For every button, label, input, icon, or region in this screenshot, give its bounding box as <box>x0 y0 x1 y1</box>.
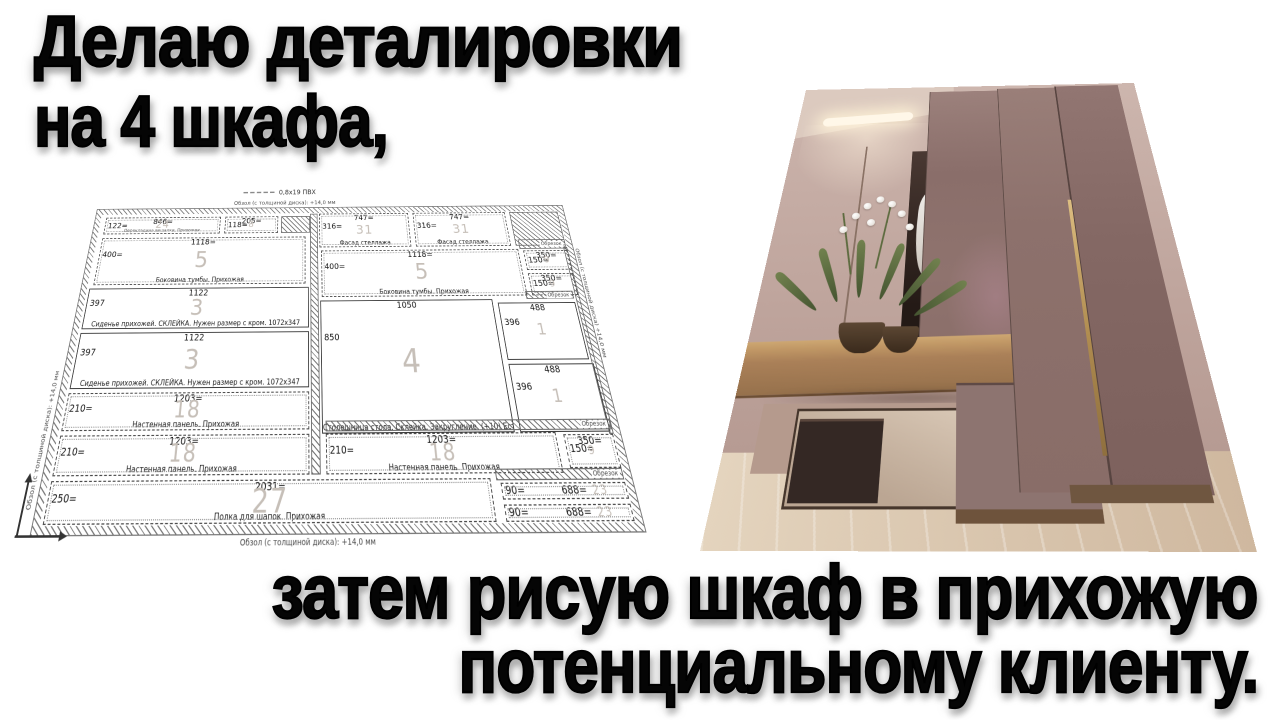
plant-stem <box>875 206 892 268</box>
offcut-hatch: Обрезок <box>518 239 567 249</box>
panel-name: Фасад стеллажа <box>416 238 510 246</box>
cut-panel: 1203=210=18Настенная панель. Прихожая <box>52 434 309 477</box>
panel-name: Боковина тумбы. Прихожая <box>322 287 526 296</box>
cutting-diagram: 846=122=24Перекладина вешалки. Прихожая2… <box>29 205 646 537</box>
offcut-label: Обрезок <box>539 241 564 247</box>
panel-height-dim: 90= <box>505 484 526 497</box>
panel-width-dim: 1050 <box>396 301 417 311</box>
cut-panel: 350=150=9 <box>563 434 621 468</box>
panel-width-dim: 488 <box>529 303 546 313</box>
cut-panel: 846=122=24Перекладина вешалки. Прихожая <box>103 217 221 235</box>
cut-panel: 1203=210=18Настенная панель. Прихожая <box>61 391 309 431</box>
thumbnail-canvas: { "thumbnail": { "heading_top": ["Делаю … <box>0 0 1280 720</box>
cut-panel: 747=316=31Фасад стеллажа <box>319 213 411 247</box>
cut-panel: 205=118=8 <box>224 216 278 233</box>
panel-name: Настенная панель. Прихожая <box>62 419 308 430</box>
panel-qty: 8 <box>225 219 277 229</box>
panel-qty: 1 <box>513 385 603 407</box>
edge-note-bottom: Обзол (с толщиной диска): +14,0 мм <box>240 537 376 548</box>
panel-qty: 5 <box>322 259 524 286</box>
cut-panel: 11223973Сиденье прихожей. СКЛЕЙКА. Нужен… <box>81 287 309 329</box>
plant-stem <box>842 213 851 275</box>
panel-qty: 1 <box>502 320 583 339</box>
orchid-flower <box>863 203 872 210</box>
panel-name: Боковина тумбы. Прихожая <box>94 275 304 284</box>
edge-note-top: Обзол (с толщиной диска): +14,0 мм <box>234 200 336 207</box>
panel-qty: 31 <box>320 222 410 237</box>
cut-panel: 688=90=23 <box>501 482 630 500</box>
panel-height-dim: 90= <box>508 506 530 520</box>
cut-panel: 1118=400=5Боковина тумбы. Прихожая <box>93 237 305 286</box>
panel-qty: 3 <box>73 342 308 376</box>
panel-qty: 9 <box>530 278 576 289</box>
headline-bottom-line1: затем рисую шкаф в прихожую <box>272 556 1258 630</box>
orchid-flower <box>867 219 876 226</box>
plant-leaf <box>854 239 865 298</box>
headline-top: Делаю деталировки на 4 шкафа, <box>34 2 739 162</box>
offcut-label: Обрезок <box>545 292 571 298</box>
panel-qty: 3 <box>84 294 308 321</box>
offcut-label: Обрезок <box>590 470 621 478</box>
pvc-legend-label: 0,8x19 ПВХ <box>279 189 316 196</box>
panel-name: Настенная панель. Прихожая <box>53 463 308 475</box>
panel-qty: 4 <box>322 342 506 382</box>
orchid-flower <box>888 201 896 208</box>
panel-name: Сиденье прихожей. СКЛЕЙКА. Нужен размер … <box>71 377 309 388</box>
plant-leaf <box>773 270 819 314</box>
panel-qty: 23 <box>585 504 626 520</box>
offcut-hatch: Обрезок <box>525 291 574 299</box>
panel-qty: 9 <box>525 254 570 265</box>
panel-width-dim: 1122 <box>183 333 204 343</box>
cut-panel: 1118=400=5Боковина тумбы. Прихожая <box>321 249 527 297</box>
plant-leaf <box>817 247 841 304</box>
dashed-line-sample <box>243 192 274 194</box>
sheet-surface: 846=122=24Перекладина вешалки. Прихожая2… <box>39 211 636 526</box>
cut-panel: 688=90=23 <box>504 504 635 522</box>
offcut-label: Обрезок <box>579 420 609 428</box>
pvc-edge-legend: 0,8x19 ПВХ <box>243 189 316 197</box>
orchid-flower <box>898 210 906 217</box>
orchid-flower <box>876 196 884 202</box>
panel-name: Сиденье прихожей. СКЛЕЙКА. Нужен размер … <box>82 318 308 328</box>
panel-width-dim: 747= <box>354 214 374 222</box>
bench-drawer <box>787 419 884 504</box>
headline-top-line2: на 4 шкафа, <box>34 82 388 162</box>
cut-panel: 747=316=31Фасад стеллажа <box>412 212 511 246</box>
wardrobe-plinth <box>1069 485 1214 503</box>
panel-qty: 9 <box>566 443 618 458</box>
cut-panel: 4883961 <box>498 302 589 360</box>
x-axis-arrow-icon <box>15 535 61 537</box>
headline-bottom-line2: потенциальному клиенту. <box>458 630 1258 704</box>
offcut-hatch <box>281 216 310 233</box>
panel-name: Полка для шапок. Прихожая <box>44 510 496 524</box>
base-cabinet-kick <box>956 509 1105 523</box>
offcut-hatch: Обрезок <box>495 468 625 481</box>
cut-panel: 2031=250=27Полка для шапок. Прихожая <box>43 478 497 525</box>
panel-qty: 31 <box>414 221 508 236</box>
headline-bottom: затем рисую шкаф в прихожую потенциально… <box>101 556 1258 704</box>
orchid-flower <box>851 213 860 220</box>
panel-height-dim: 850 <box>324 333 340 343</box>
offcut-hatch <box>310 214 321 475</box>
cut-panel: 10508504Столешница стола. Склейка. Закру… <box>320 299 515 434</box>
panel-qty: 23 <box>580 482 621 498</box>
panel-width-dim: 1118= <box>191 238 217 247</box>
cut-panel: 11223973Сиденье прихожей. СКЛЕЙКА. Нужен… <box>70 331 310 389</box>
panel-qty: 5 <box>96 247 304 274</box>
panel-width-dim: 1118= <box>407 250 433 259</box>
panel-width-dim: 747= <box>449 213 470 221</box>
orchid-flower <box>906 224 914 231</box>
orchid-plant <box>787 188 944 347</box>
hallway-photo <box>700 83 1257 552</box>
panel-name: Фасад стеллажа <box>320 239 410 247</box>
panel-name: Перекладина вешалки. Прихожая <box>104 228 219 234</box>
panel-width-dim: 488 <box>543 364 561 375</box>
headline-top-line1: Делаю деталировки <box>34 2 682 82</box>
offcut-hatch: Обрезок <box>326 419 612 432</box>
